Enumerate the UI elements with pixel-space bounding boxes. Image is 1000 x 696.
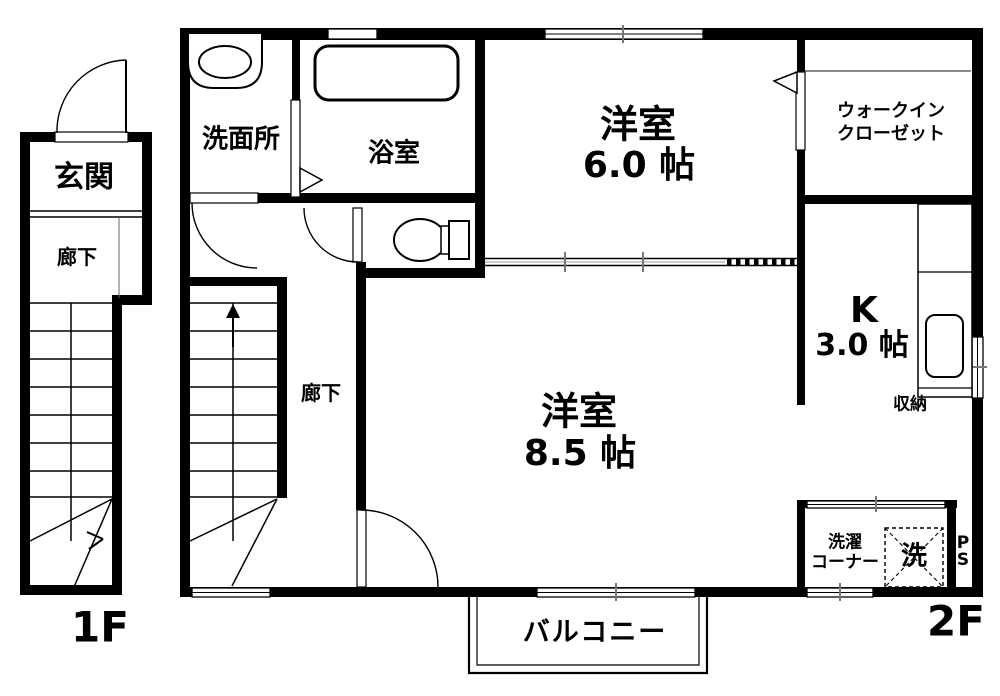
label-yoshitsu85: 洋室 [541,391,617,434]
bath-window [328,29,377,39]
label-senmenjo: 洗面所 [202,125,280,154]
entrance-door [55,60,128,142]
label-shuno: 収納 [893,395,927,414]
floor-plan: 玄関 廊下 1F 洗面所 浴室 洋室 6.0 帖 ウォークイン クローゼット K… [0,0,1000,696]
label-kitchen: K [850,291,878,331]
label-rouka-1f: 廊下 [57,246,97,268]
label-floor-2f: 2F [927,597,985,644]
room-toilet [366,203,475,268]
label-genkan: 玄関 [54,161,114,195]
room-yokushitsu [300,40,475,193]
label-kitchen-size: 3.0 帖 [815,329,909,363]
label-yokushitsu: 浴室 [368,139,420,168]
stairs-2f [190,303,277,586]
label-sentaku: 洗濯 コーナー [811,533,879,572]
label-floor-1f: 1F [71,603,129,650]
label-washer: 洗 [901,542,927,571]
label-yoshitsu6-size: 6.0 帖 [583,146,695,186]
washroom-door [190,193,258,268]
room-stairs-1f [30,303,112,585]
toilet-door [304,208,362,262]
label-ps: P S [957,535,969,569]
room-rouka-2f [287,286,356,587]
room-senmenjo [190,40,292,193]
label-yoshitsu85-size: 8.5 帖 [524,434,636,474]
label-balcony: バルコニー [523,618,667,648]
stair-window [192,588,270,597]
label-rouka-2f: 廊下 [301,382,341,404]
stairs-2f-direction-arrow [226,304,240,347]
label-yoshitsu6: 洋室 [600,104,676,147]
label-wic: ウォークイン クローゼット [837,101,945,146]
